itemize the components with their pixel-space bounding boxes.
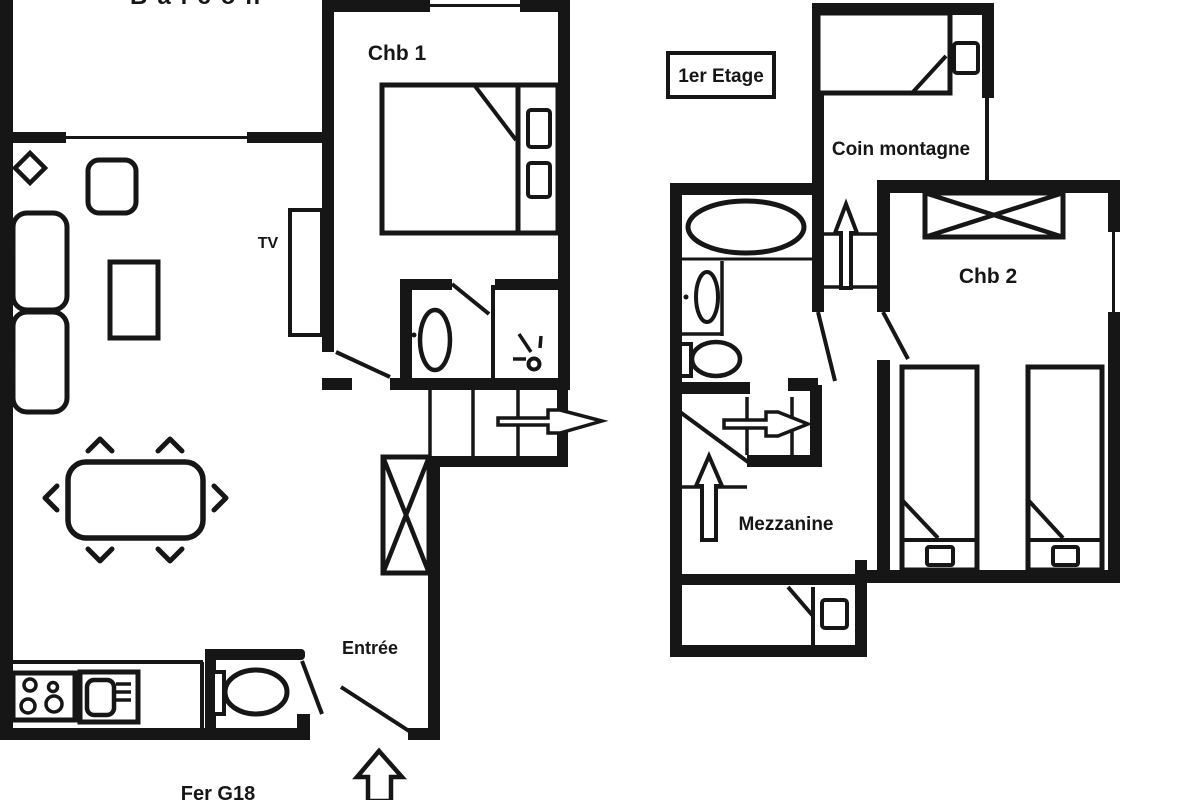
toilet-upstairs-icon: [680, 342, 740, 376]
mountain-corner-label: Coin montagne: [832, 139, 970, 160]
tv-label: TV: [258, 235, 279, 252]
up-arrow-icon: [835, 204, 857, 288]
single-bed-icon: [1028, 367, 1102, 570]
mezzanine-label: Mezzanine: [738, 514, 833, 535]
kitchen-counter: [13, 662, 203, 728]
first-floor-doors: [818, 312, 908, 381]
entrance-label: Entrée: [342, 638, 398, 658]
floor-plan-svg: Balcon Chb 1 TV Entrée Fer G18: [0, 0, 1200, 800]
coffee-table-icon: [110, 262, 158, 338]
reference-label: Fer G18: [181, 783, 255, 800]
double-bed-icon: [382, 85, 558, 233]
coin-montagne-bed-icon: [818, 13, 978, 93]
stairs-direction-arrow-icon: [498, 410, 602, 433]
entrance-arrow-icon: [357, 751, 402, 800]
tv-icon: [290, 210, 322, 335]
first-floor-plan: 1er Etage Coin montagne Chb 2 Mezzanine: [668, 3, 1120, 657]
upper-stairs-icon: [824, 204, 877, 288]
floor-plan-page: Balcon Chb 1 TV Entrée Fer G18: [0, 0, 1200, 800]
ground-floor-plan: Balcon Chb 1 TV Entrée Fer G18: [0, 0, 602, 800]
bathtub-icon: [688, 201, 804, 253]
wardrobe-icon: [925, 193, 1063, 237]
toilet-icon: [213, 670, 287, 714]
washbasin-icon: [682, 261, 722, 336]
bedroom2-label: Chb 2: [959, 265, 1017, 288]
dining-table-icon: [45, 439, 226, 561]
balcony-label: Balcon: [130, 0, 270, 10]
sofa-icon: [13, 213, 67, 412]
single-bed-icon: [902, 367, 977, 570]
mezzanine-bed-icon: [788, 587, 847, 648]
floor-label: 1er Etage: [678, 66, 764, 87]
bedroom1-label: Chb 1: [368, 42, 427, 65]
armchair-icon: [88, 160, 136, 213]
up-arrow-icon: [696, 456, 722, 540]
sink-icon: [80, 672, 138, 722]
closet-icon: [383, 457, 429, 573]
shower-icon: [513, 334, 541, 370]
stove-icon: [13, 673, 75, 720]
stairs-icon: [430, 390, 602, 456]
stairs-direction-arrow-icon: [724, 412, 808, 436]
decor-diamond-icon: [15, 153, 45, 183]
bidet-icon: [412, 310, 451, 370]
